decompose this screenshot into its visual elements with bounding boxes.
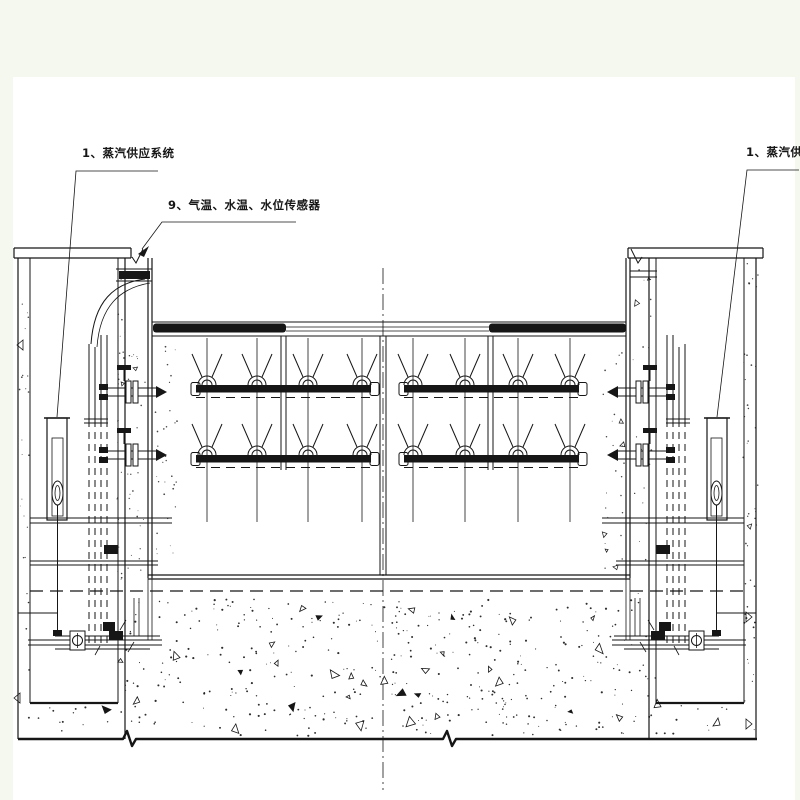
callout-steam-right-text: 1、蒸汽供应系统: [746, 145, 800, 159]
engineering-drawing: 1、蒸汽供应系统 9、气温、水温、水位传感器 1、蒸汽供应系统: [0, 0, 800, 800]
flange-plate: [126, 444, 131, 466]
manifold-pipe-right: [489, 324, 626, 333]
callout-steam-left-text: 1、蒸汽供应系统: [82, 146, 175, 160]
flange-plate: [133, 381, 138, 403]
inlet-flange: [119, 271, 150, 279]
flange-plate: [133, 444, 138, 466]
flange-plate: [126, 381, 131, 403]
anchor-block: [104, 545, 118, 554]
manifold-pipe-left: [153, 324, 286, 333]
callout-sensors-text: 9、气温、水温、水位传感器: [168, 198, 321, 212]
